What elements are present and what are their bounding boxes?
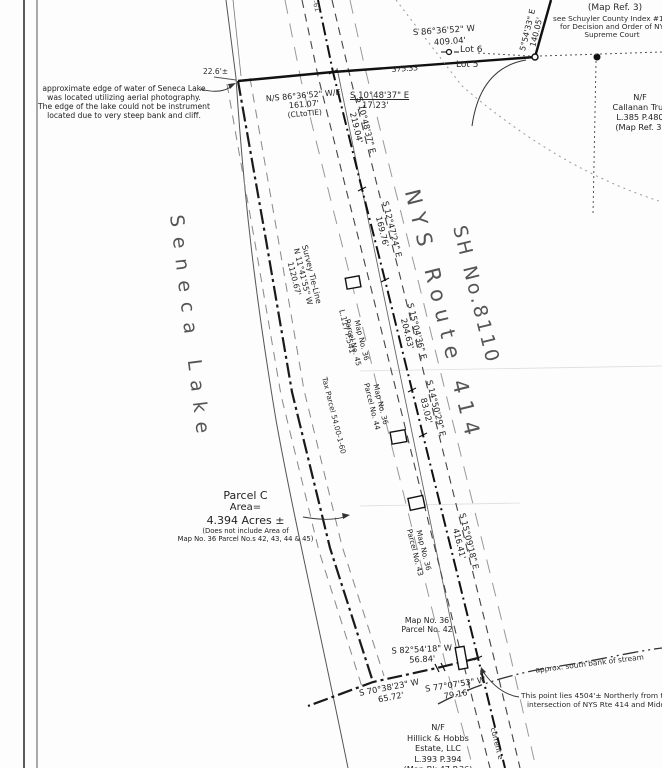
parcel-c-name: Parcel C	[163, 489, 328, 502]
parcel-c-block: Parcel C Area= 4.394 Acres ± (Does not i…	[163, 489, 328, 543]
point-note-line1: This point lies 4504'± Northerly from th…	[521, 691, 662, 700]
east-dotted-line	[540, 52, 662, 56]
callanan-dotted-line	[593, 61, 596, 215]
offset-dim-line	[214, 77, 236, 80]
lake-note: approximate edge of water of Seneca Lake…	[36, 84, 212, 120]
point-note-line2: intersection of NYS Rte 414 and Middle R…	[527, 700, 662, 709]
structure-square-43	[408, 495, 425, 510]
corner-monument-filled	[594, 54, 601, 61]
lake-note-line2: was located utilizing aerial photography…	[36, 93, 212, 102]
owner-callanan-block: N/F Callanan Trus L.385 P.480 (Map Ref. …	[585, 92, 662, 132]
owner-hillick-block: N/F Hillick & Hobbs Estate, LLC L.393 P.…	[377, 722, 499, 768]
survey-map-sheet: Callanan (Map Ref. 3) see Schuyler Count…	[0, 0, 662, 768]
callanan-nf: N/F	[585, 92, 662, 102]
map-ref-label: (Map Ref. 3)	[570, 3, 660, 13]
parcel-c-area-label: Area=	[163, 502, 328, 514]
west-boundary-line	[238, 81, 373, 682]
hillick-deed: L.393 P.394	[377, 754, 499, 765]
callanan-map-ref: (Map Ref. 3)	[585, 122, 662, 132]
lake-note-line4: located due to very steep bank and cliff…	[36, 111, 212, 120]
parcel-42-line1: Map No. 36	[387, 616, 467, 625]
lake-note-line3: The edge of the lake could not be instru…	[36, 102, 212, 111]
structure-square-45	[345, 276, 361, 289]
lot6-marker	[447, 50, 452, 55]
parcel-c-exclusion1: (Does not include Area of	[163, 527, 328, 535]
hillick-nf: N/F	[377, 722, 499, 733]
parcel-c-arrow	[342, 513, 350, 519]
parcel-c-exclusion2: Map No. 36 Parcel No.s 42, 43, 44 & 45)	[163, 535, 328, 543]
court-note-line3: Supreme Court	[548, 30, 662, 39]
lake-offset-label: 22.6'±	[203, 67, 228, 76]
lot5-label: Lot 5	[456, 60, 478, 70]
callanan-name: Callanan Trus	[585, 102, 662, 112]
parcel-42-line2: Parcel No. 42	[387, 625, 467, 634]
cl-to-tie-line	[238, 72, 333, 81]
callanan-deed: L.385 P.480	[585, 112, 662, 122]
hillick-name2: Estate, LLC	[377, 743, 499, 754]
lot6-label: Lot 6	[460, 45, 482, 55]
lake-note-line1: approximate edge of water of Seneca Lake	[36, 84, 212, 93]
hillick-name: Hillick & Hobbs	[377, 733, 499, 744]
parcel-c-area: 4.394 Acres ±	[163, 514, 328, 527]
lake-offset-dash-line	[227, 84, 362, 687]
parcel-42-tag: Map No. 36 Parcel No. 42	[387, 616, 467, 634]
hillick-map-ref: (Map Bk 47 P.36)	[377, 764, 499, 768]
